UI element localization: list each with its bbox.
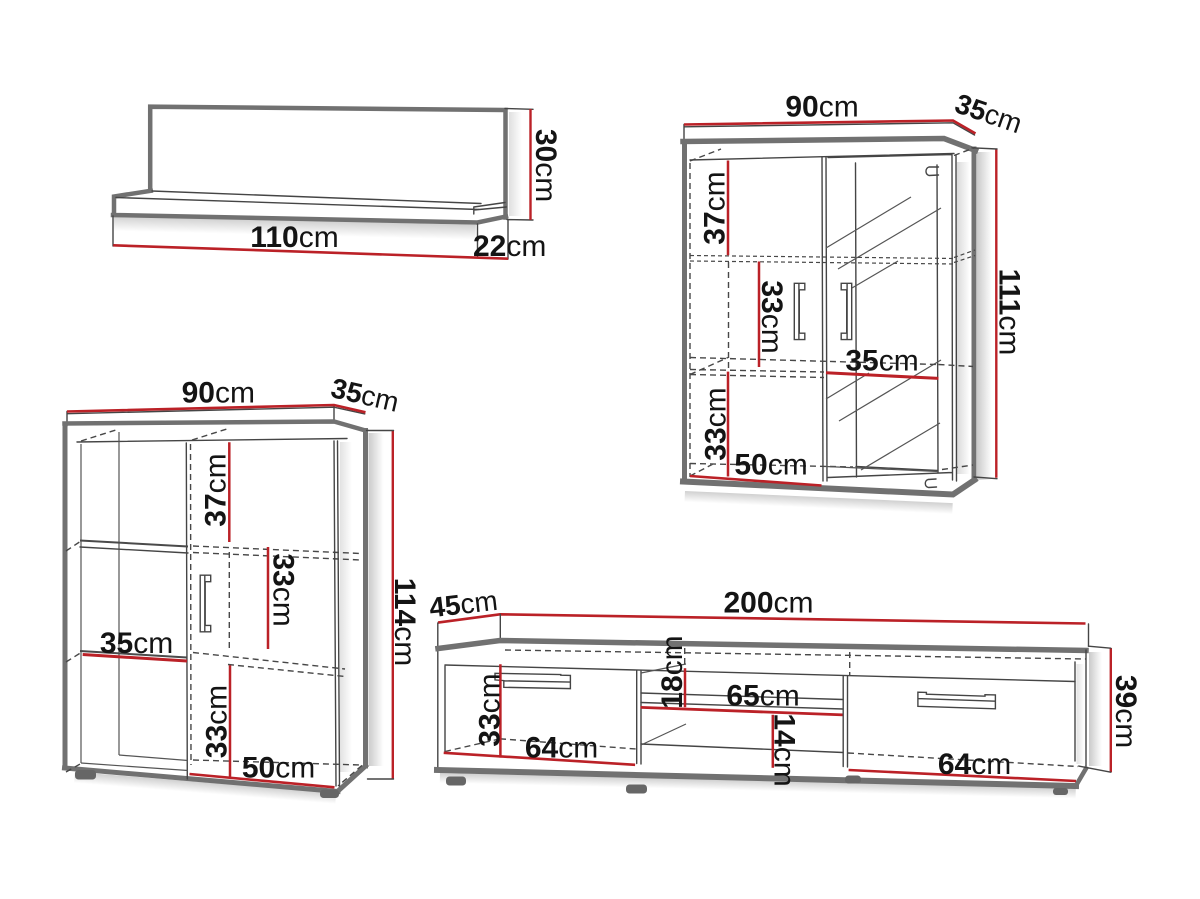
svg-text:33cm: 33cm <box>201 685 234 758</box>
svg-text:64cm: 64cm <box>525 732 598 765</box>
svg-text:110cm: 110cm <box>250 221 338 254</box>
svg-text:50cm: 50cm <box>734 449 807 482</box>
svg-text:90cm: 90cm <box>785 91 858 124</box>
svg-text:14cm: 14cm <box>768 713 801 786</box>
svg-text:114cm: 114cm <box>388 578 421 666</box>
svg-text:33cm: 33cm <box>267 553 300 626</box>
svg-text:200cm: 200cm <box>723 587 813 620</box>
svg-text:33cm: 33cm <box>700 387 733 460</box>
svg-text:35cm: 35cm <box>845 345 918 378</box>
svg-text:50cm: 50cm <box>242 752 315 785</box>
svg-text:65cm: 65cm <box>726 680 799 713</box>
svg-text:35cm: 35cm <box>100 627 173 660</box>
svg-text:111cm: 111cm <box>993 269 1026 356</box>
svg-text:39cm: 39cm <box>1109 675 1142 748</box>
svg-text:90cm: 90cm <box>182 377 255 410</box>
svg-text:37cm: 37cm <box>200 453 233 526</box>
svg-text:33cm: 33cm <box>473 673 506 746</box>
svg-text:33cm: 33cm <box>755 280 788 353</box>
svg-text:22cm: 22cm <box>473 230 546 263</box>
svg-text:30cm: 30cm <box>529 129 562 202</box>
svg-text:37cm: 37cm <box>699 171 732 244</box>
svg-text:64cm: 64cm <box>938 748 1011 781</box>
svg-text:18cm: 18cm <box>656 635 689 708</box>
